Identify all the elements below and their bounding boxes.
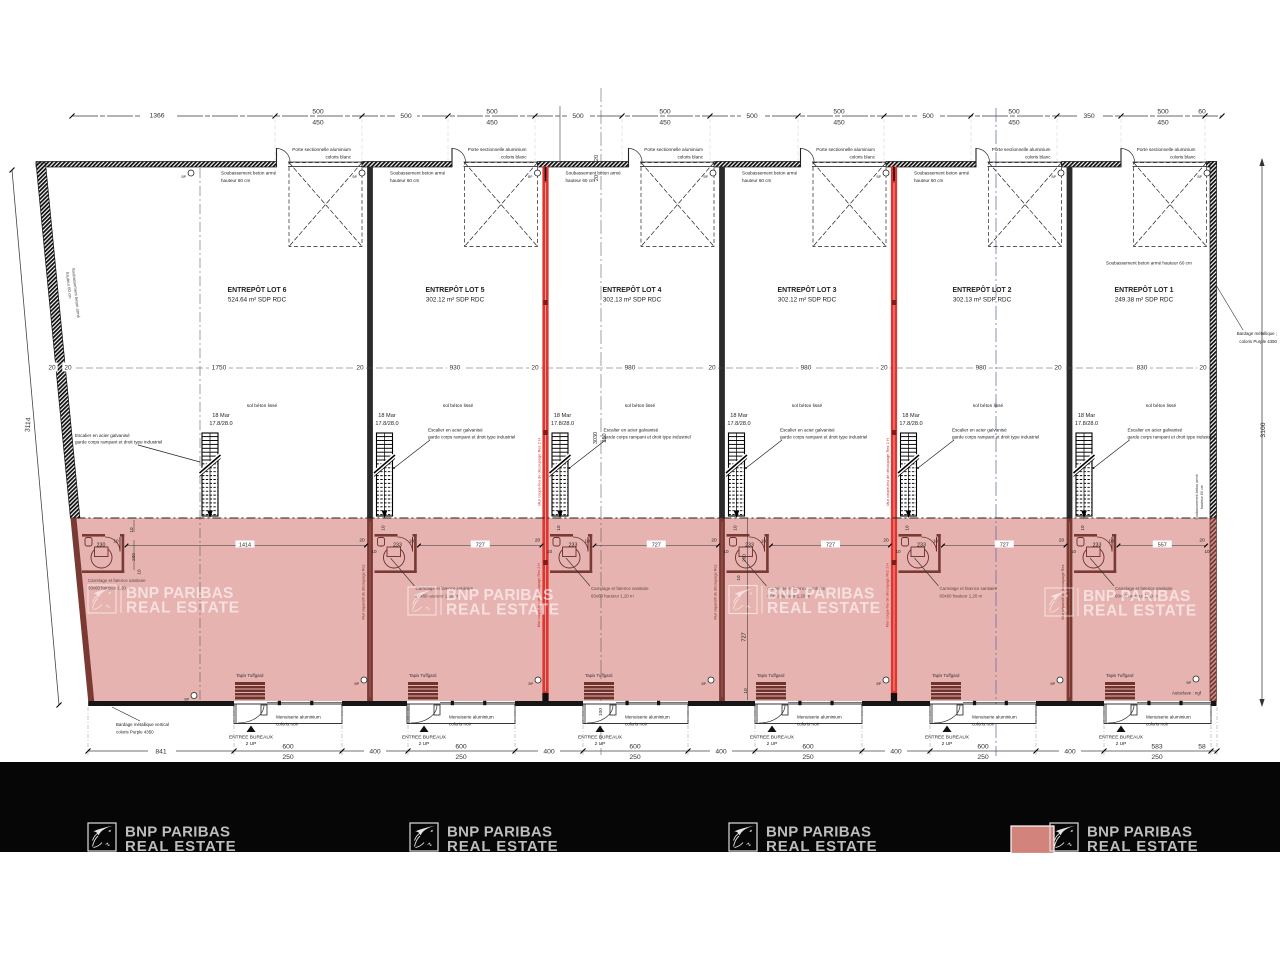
svg-text:1414: 1414	[239, 543, 251, 549]
svg-text:sol béton lissé: sol béton lissé	[443, 403, 474, 409]
svg-text:Soubassement beton armé: Soubassement beton armé	[742, 171, 798, 176]
svg-text:60: 60	[1198, 109, 1206, 116]
svg-text:450: 450	[312, 120, 324, 127]
svg-text:Carrelage et faïence sanitaire: Carrelage et faïence sanitaire	[88, 578, 146, 583]
svg-text:500: 500	[922, 113, 934, 120]
svg-text:coloris blanc: coloris blanc	[1025, 155, 1051, 160]
svg-text:garde corps rampant et droit t: garde corps rampant et droit type indust…	[604, 435, 691, 440]
svg-text:REAL ESTATE: REAL ESTATE	[126, 600, 240, 617]
svg-text:10: 10	[371, 549, 377, 554]
svg-text:450: 450	[1157, 120, 1169, 127]
svg-text:REAL ESTATE: REAL ESTATE	[447, 838, 559, 855]
svg-text:10: 10	[1071, 549, 1077, 554]
svg-text:Carrelage et faïence sanitaire: Carrelage et faïence sanitaire	[940, 586, 998, 591]
svg-text:20: 20	[535, 538, 541, 544]
svg-text:250: 250	[802, 754, 814, 761]
svg-text:233: 233	[1093, 543, 1102, 549]
svg-text:Soubassement béton armé: Soubassement béton armé	[1195, 474, 1199, 520]
svg-text:REAL ESTATE: REAL ESTATE	[1083, 603, 1197, 620]
svg-text:2 UP: 2 UP	[767, 741, 778, 747]
svg-text:500: 500	[400, 113, 412, 120]
svg-text:500: 500	[746, 113, 758, 120]
svg-text:2 UP: 2 UP	[942, 741, 953, 747]
svg-text:Escalier en acier galvanisé: Escalier en acier galvanisé	[428, 428, 483, 433]
svg-text:1750: 1750	[212, 365, 227, 372]
svg-text:302.13 m² SDP RDC: 302.13 m² SDP RDC	[953, 297, 1012, 304]
svg-text:10: 10	[113, 539, 119, 544]
svg-text:Menuiserie aluminium: Menuiserie aluminium	[276, 715, 321, 720]
svg-text:10: 10	[584, 539, 590, 544]
svg-text:coloris noir: coloris noir	[449, 722, 472, 727]
svg-text:Menuiserie aluminium: Menuiserie aluminium	[625, 715, 670, 720]
svg-text:20: 20	[1054, 365, 1062, 372]
svg-text:500: 500	[833, 109, 845, 116]
svg-text:coloris noir: coloris noir	[972, 722, 995, 727]
svg-text:Tapis Tuffgard: Tapis Tuffgard	[932, 673, 960, 678]
svg-text:18 Mar: 18 Mar	[902, 413, 920, 419]
svg-text:Escalier en acier galvanisé: Escalier en acier galvanisé	[75, 433, 130, 438]
svg-text:18 Mar: 18 Mar	[212, 413, 230, 419]
svg-text:BP: BP	[1051, 175, 1056, 179]
svg-text:ENTREE BUREAUX: ENTREE BUREAUX	[925, 735, 970, 741]
svg-text:Soubassement beton armé: Soubassement beton armé	[914, 171, 970, 176]
svg-text:10: 10	[761, 539, 767, 544]
svg-text:20: 20	[1199, 365, 1207, 372]
svg-text:10: 10	[905, 525, 910, 531]
svg-text:ENTREE BUREAUX: ENTREE BUREAUX	[578, 735, 623, 741]
svg-text:20: 20	[1199, 538, 1205, 544]
svg-text:Bardage métallique ;: Bardage métallique ;	[1237, 331, 1277, 336]
svg-text:18 Mar: 18 Mar	[378, 413, 396, 419]
svg-text:500: 500	[312, 109, 324, 116]
svg-text:450: 450	[659, 120, 671, 127]
svg-text:Tapis Tuffgard: Tapis Tuffgard	[585, 673, 613, 678]
svg-text:sol béton lissé: sol béton lissé	[247, 403, 278, 409]
svg-text:980: 980	[801, 365, 812, 372]
svg-text:20: 20	[1059, 538, 1065, 544]
svg-text:727: 727	[742, 632, 748, 641]
svg-text:Mur séparatif de découpage Rez: Mur séparatif de découpage Rez	[714, 564, 718, 619]
svg-text:ENTREPÔT LOT 5: ENTREPÔT LOT 5	[426, 285, 485, 294]
svg-text:20: 20	[880, 365, 888, 372]
svg-text:500: 500	[659, 109, 671, 116]
svg-text:524.64 m² SDP RDC: 524.64 m² SDP RDC	[228, 297, 287, 304]
svg-text:450: 450	[486, 120, 498, 127]
svg-text:Porte sectionnelle aluminium: Porte sectionnelle aluminium	[468, 147, 527, 152]
svg-text:18 Mar: 18 Mar	[730, 413, 748, 419]
svg-text:17.8/28.0: 17.8/28.0	[727, 421, 750, 427]
svg-text:Tapis Tuffgard: Tapis Tuffgard	[757, 673, 785, 678]
svg-text:10: 10	[1108, 539, 1114, 544]
svg-text:727: 727	[826, 543, 835, 549]
svg-text:coloris noir: coloris noir	[1146, 722, 1169, 727]
svg-text:garde corps rampant et droit t: garde corps rampant et droit type indust…	[1128, 435, 1215, 440]
svg-text:2 UP: 2 UP	[246, 741, 257, 747]
svg-text:ENTREPÔT LOT 2: ENTREPÔT LOT 2	[953, 285, 1012, 294]
svg-text:coloris blanc: coloris blanc	[1170, 155, 1196, 160]
svg-text:20: 20	[594, 155, 600, 161]
svg-text:10: 10	[137, 569, 142, 575]
svg-text:Porte sectionnelle aluminium: Porte sectionnelle aluminium	[816, 147, 875, 152]
svg-text:233: 233	[569, 543, 578, 549]
svg-text:coloris blanc: coloris blanc	[501, 155, 527, 160]
svg-text:Menuiserie aluminium: Menuiserie aluminium	[449, 715, 494, 720]
svg-text:20: 20	[356, 365, 364, 372]
svg-text:302.12 m² SDP RDC: 302.12 m² SDP RDC	[426, 297, 485, 304]
svg-text:233: 233	[917, 543, 926, 549]
svg-text:Porte sectionnelle aluminium: Porte sectionnelle aluminium	[292, 147, 351, 152]
svg-text:600: 600	[455, 744, 467, 751]
svg-text:ENTREPÔT LOT 4: ENTREPÔT LOT 4	[603, 285, 662, 294]
svg-text:REAL ESTATE: REAL ESTATE	[125, 838, 237, 855]
svg-text:250: 250	[629, 754, 641, 761]
svg-text:ENTREE BUREAUX: ENTREE BUREAUX	[750, 735, 795, 741]
svg-text:17.8/28.0: 17.8/28.0	[551, 421, 574, 427]
svg-text:600: 600	[282, 744, 294, 751]
svg-text:REAL ESTATE: REAL ESTATE	[766, 838, 878, 855]
svg-text:BP: BP	[352, 175, 357, 179]
svg-text:500: 500	[1008, 109, 1020, 116]
svg-text:BP: BP	[354, 682, 359, 686]
svg-text:Carrelage et faïence sanitaire: Carrelage et faïence sanitaire	[591, 586, 649, 591]
svg-text:17.8/28.0: 17.8/28.0	[209, 421, 232, 427]
svg-text:17.8/28.0: 17.8/28.0	[1075, 421, 1098, 427]
svg-text:20: 20	[594, 175, 600, 181]
svg-text:302.13 m² SDP RDC: 302.13 m² SDP RDC	[603, 297, 662, 304]
svg-text:20: 20	[64, 365, 72, 372]
svg-text:400: 400	[890, 749, 902, 756]
svg-text:hauteur 60 cm: hauteur 60 cm	[1200, 485, 1204, 509]
svg-text:10: 10	[895, 549, 901, 554]
svg-text:2 UP: 2 UP	[419, 741, 430, 747]
svg-text:10: 10	[547, 549, 553, 554]
svg-text:Menuiserie aluminium: Menuiserie aluminium	[797, 715, 842, 720]
svg-text:233: 233	[393, 543, 402, 549]
svg-text:Menuiserie aluminium: Menuiserie aluminium	[972, 715, 1017, 720]
svg-text:250: 250	[282, 754, 294, 761]
svg-text:coloris Purple 4350: coloris Purple 4350	[116, 730, 154, 735]
svg-text:58: 58	[1198, 744, 1206, 751]
svg-text:ENTREE BUREAUX: ENTREE BUREAUX	[229, 735, 274, 741]
svg-text:REAL ESTATE: REAL ESTATE	[1087, 838, 1199, 855]
svg-text:hauteur 60 cm: hauteur 60 cm	[390, 178, 420, 183]
svg-text:10: 10	[733, 525, 738, 531]
svg-text:BP: BP	[181, 175, 186, 179]
svg-text:727: 727	[652, 543, 661, 549]
svg-text:Soubassement beton armé: Soubassement beton armé	[221, 171, 277, 176]
svg-text:BP: BP	[184, 698, 189, 702]
svg-text:20: 20	[531, 365, 539, 372]
svg-text:249.38 m² SDP RDC: 249.38 m² SDP RDC	[1115, 297, 1174, 304]
svg-text:BP: BP	[528, 682, 533, 686]
svg-text:Porte sectionnelle aluminium: Porte sectionnelle aluminium	[644, 147, 703, 152]
svg-text:sol béton lissé: sol béton lissé	[973, 403, 1004, 409]
svg-text:830: 830	[1137, 365, 1148, 372]
svg-text:400: 400	[543, 749, 555, 756]
svg-text:hauteur 60 cm: hauteur 60 cm	[566, 178, 596, 183]
svg-text:ENTREPÔT LOT 6: ENTREPÔT LOT 6	[228, 285, 287, 294]
svg-text:coloris noir: coloris noir	[276, 722, 299, 727]
svg-text:18 Mar: 18 Mar	[554, 413, 572, 419]
svg-text:3030: 3030	[593, 432, 599, 444]
svg-text:10: 10	[933, 539, 939, 544]
svg-text:10: 10	[409, 539, 415, 544]
svg-text:230: 230	[97, 543, 106, 549]
svg-text:hauteur 60 cm: hauteur 60 cm	[742, 178, 772, 183]
svg-text:200: 200	[131, 553, 136, 561]
svg-text:BP: BP	[703, 175, 708, 179]
svg-text:20: 20	[48, 365, 56, 372]
svg-text:400: 400	[1064, 749, 1076, 756]
svg-text:coloris blanc: coloris blanc	[849, 155, 875, 160]
svg-text:302.12 m² SDP RDC: 302.12 m² SDP RDC	[778, 297, 837, 304]
svg-text:10: 10	[129, 527, 134, 533]
svg-text:500: 500	[1157, 109, 1169, 116]
svg-text:Porte sectionnelle aluminium: Porte sectionnelle aluminium	[1137, 147, 1196, 152]
svg-text:17.8/28.0: 17.8/28.0	[899, 421, 922, 427]
svg-text:500: 500	[572, 113, 584, 120]
svg-text:600: 600	[802, 744, 814, 751]
svg-text:Mur séparatif de découpage Rez: Mur séparatif de découpage Rez	[362, 564, 366, 619]
svg-text:2 UP: 2 UP	[1116, 741, 1127, 747]
svg-text:250: 250	[1151, 754, 1163, 761]
svg-text:Tapis Tuffgard: Tapis Tuffgard	[1106, 673, 1134, 678]
svg-text:BP: BP	[528, 175, 533, 179]
svg-text:garde corps rampant et droit t: garde corps rampant et droit type indust…	[428, 435, 515, 440]
svg-text:Escalier en acier galvanisé: Escalier en acier galvanisé	[780, 428, 835, 433]
svg-text:ENTREPÔT LOT 3: ENTREPÔT LOT 3	[778, 285, 837, 294]
svg-text:557: 557	[1158, 543, 1167, 549]
svg-text:Mur coupe-feu de découpage Rez: Mur coupe-feu de découpage Rez 2 H	[885, 438, 890, 506]
svg-text:10: 10	[556, 525, 561, 531]
svg-text:Escalier en acier galvanisé: Escalier en acier galvanisé	[952, 428, 1007, 433]
svg-text:Bardage métallique vertical: Bardage métallique vertical	[116, 722, 169, 727]
svg-text:sol béton lissé: sol béton lissé	[1146, 403, 1177, 409]
svg-text:garde corps rampant et droit t: garde corps rampant et droit type indust…	[780, 435, 867, 440]
svg-text:Mur coupe-feu de découpage Rez: Mur coupe-feu de découpage Rez 2 H	[886, 563, 890, 628]
svg-text:BP: BP	[1186, 681, 1191, 685]
svg-text:17.8/28.0: 17.8/28.0	[375, 421, 398, 427]
svg-text:20: 20	[359, 538, 365, 544]
svg-text:3114: 3114	[24, 417, 32, 432]
svg-text:ENTREE BUREAUX: ENTREE BUREAUX	[1099, 735, 1144, 741]
svg-text:60x60 hauteur 1,20 m: 60x60 hauteur 1,20 m	[591, 594, 634, 599]
svg-text:BP: BP	[1197, 175, 1202, 179]
svg-text:10: 10	[381, 525, 386, 531]
svg-text:coloris Purple 4350: coloris Purple 4350	[1239, 339, 1277, 344]
svg-text:10: 10	[1204, 549, 1210, 554]
svg-text:980: 980	[625, 365, 636, 372]
svg-text:841: 841	[155, 749, 167, 756]
svg-text:sol béton lissé: sol béton lissé	[792, 403, 823, 409]
svg-text:coloris noir: coloris noir	[625, 722, 648, 727]
svg-text:450: 450	[833, 120, 845, 127]
svg-text:hauteur 60 cm: hauteur 60 cm	[914, 178, 944, 183]
svg-text:BP: BP	[1050, 682, 1055, 686]
svg-text:400: 400	[715, 749, 727, 756]
svg-text:3100: 3100	[1260, 422, 1267, 437]
svg-text:727: 727	[1000, 543, 1009, 549]
svg-text:18 Mar: 18 Mar	[1078, 413, 1096, 419]
svg-text:hauteur 60 cm: hauteur 60 cm	[221, 178, 251, 183]
svg-text:930: 930	[450, 365, 461, 372]
svg-text:Escalier en acier galvanisé: Escalier en acier galvanisé	[604, 428, 659, 433]
svg-text:20: 20	[711, 538, 717, 544]
svg-text:200: 200	[742, 554, 747, 562]
svg-text:Soubassement beton armé: Soubassement beton armé	[390, 171, 446, 176]
svg-text:10: 10	[736, 575, 741, 581]
svg-text:250: 250	[455, 754, 467, 761]
svg-text:Porte sectionnelle aluminium: Porte sectionnelle aluminium	[992, 147, 1051, 152]
svg-text:1366: 1366	[149, 113, 164, 120]
svg-text:Menuiserie aluminium: Menuiserie aluminium	[1146, 715, 1191, 720]
svg-text:REAL ESTATE: REAL ESTATE	[446, 602, 560, 619]
svg-text:2 UP: 2 UP	[595, 741, 606, 747]
svg-text:583: 583	[1151, 744, 1163, 751]
svg-text:500: 500	[486, 109, 498, 116]
svg-text:garde corps rampant et droit t: garde corps rampant et droit type indust…	[952, 435, 1039, 440]
svg-text:60x60 hauteur 1,20 m: 60x60 hauteur 1,20 m	[940, 594, 983, 599]
svg-text:Autoclave : ngf: Autoclave : ngf	[1172, 691, 1202, 696]
svg-text:REAL ESTATE: REAL ESTATE	[767, 600, 881, 617]
svg-text:coloris blanc: coloris blanc	[677, 155, 703, 160]
svg-text:980: 980	[976, 365, 987, 372]
svg-text:250: 250	[977, 754, 989, 761]
svg-text:10: 10	[723, 549, 729, 554]
svg-text:BP: BP	[876, 682, 881, 686]
svg-text:ENTREPÔT LOT 1: ENTREPÔT LOT 1	[1115, 285, 1174, 294]
svg-text:Soubassement beton armé hauteu: Soubassement beton armé hauteur 60 cm	[1106, 261, 1192, 266]
svg-text:450: 450	[1008, 120, 1020, 127]
svg-text:100: 100	[598, 708, 604, 716]
svg-text:727: 727	[476, 543, 485, 549]
svg-text:Tapis Tuffgard: Tapis Tuffgard	[236, 673, 264, 678]
svg-text:Mur coupe-feu de découpage Rez: Mur coupe-feu de découpage Rez 2 H	[537, 438, 542, 506]
svg-text:coloris noir: coloris noir	[797, 722, 820, 727]
svg-text:sol béton lissé: sol béton lissé	[625, 403, 656, 409]
svg-text:Soubassement beton armé: Soubassement beton armé	[566, 171, 622, 176]
svg-text:BP: BP	[701, 682, 706, 686]
svg-text:Escalier en acier galvanisé: Escalier en acier galvanisé	[1128, 428, 1183, 433]
svg-text:ENTREE BUREAUX: ENTREE BUREAUX	[402, 735, 447, 741]
svg-text:60x60 hauteur 1,20 m: 60x60 hauteur 1,20 m	[88, 586, 131, 591]
svg-text:garde corps rampant et droit t: garde corps rampant et droit type indust…	[75, 440, 162, 445]
svg-text:600: 600	[977, 744, 989, 751]
svg-text:400: 400	[369, 749, 381, 756]
svg-text:600: 600	[629, 744, 641, 751]
svg-text:coloris blanc: coloris blanc	[325, 155, 351, 160]
svg-text:20: 20	[708, 365, 716, 372]
svg-text:20: 20	[883, 538, 889, 544]
svg-text:233: 233	[745, 543, 754, 549]
svg-text:10: 10	[1080, 525, 1085, 531]
svg-text:Tapis Tuffgard: Tapis Tuffgard	[409, 673, 437, 678]
svg-text:BP: BP	[876, 175, 881, 179]
svg-text:10: 10	[743, 688, 749, 694]
svg-text:350: 350	[1083, 113, 1095, 120]
